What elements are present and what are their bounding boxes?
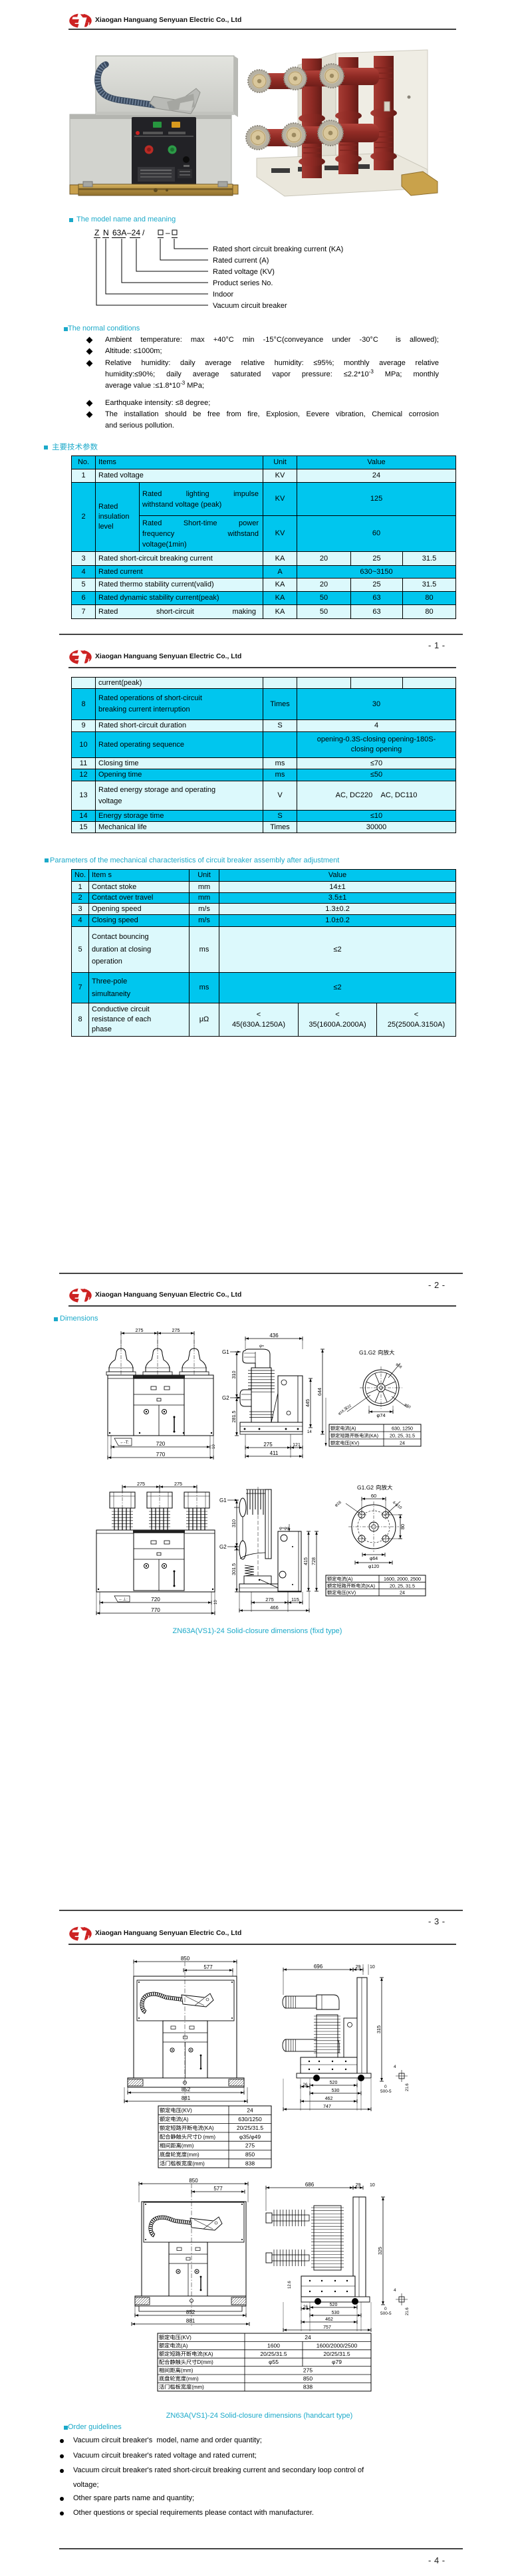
svg-text:φ16: φ16 [334,1500,343,1507]
svg-text:10: 10 [370,2183,375,2188]
svg-text:838: 838 [303,2383,313,2390]
svg-text:20/25/31.5: 20/25/31.5 [323,2351,350,2357]
svg-text:(A): (A) [350,1426,356,1432]
svg-text:0: 0 [384,2085,387,2089]
svg-text:(mm): (mm) [181,2368,193,2374]
svg-text:852: 852 [182,2087,191,2093]
svg-text:462: 462 [325,2317,333,2322]
svg-text:644: 644 [317,1388,322,1396]
svg-text:24: 24 [305,2334,311,2341]
svg-text:Rated short circuit breaking c: Rated short circuit breaking current (KA… [213,245,343,253]
svg-text:850: 850 [189,2178,198,2184]
svg-text:325: 325 [377,2247,383,2255]
svg-text:275: 275 [303,2367,313,2374]
svg-text:4-φ10: 4-φ10 [392,1501,403,1511]
svg-text:10: 10 [370,1965,375,1970]
svg-text:Rated current (A): Rated current (A) [213,257,269,265]
svg-text:757: 757 [323,2325,331,2330]
svg-text:(A): (A) [181,2343,188,2349]
svg-text:G2: G2 [219,1544,227,1550]
svg-text:(mm): (mm) [192,2384,204,2390]
svg-text:24: 24 [247,2107,253,2114]
svg-text:(KV): (KV) [350,1440,359,1446]
svg-text:(KV): (KV) [181,2335,192,2341]
svg-text:530: 530 [332,2089,340,2093]
svg-text:275: 275 [172,1327,180,1333]
svg-text:20, 25, 31.5: 20, 25, 31.5 [390,1583,415,1589]
svg-text:770: 770 [156,1452,166,1458]
svg-text:720: 720 [156,1441,166,1447]
svg-text:24: 24 [400,1440,405,1446]
svg-text:630/1250: 630/1250 [238,2116,262,2123]
svg-text:φ74: φ74 [376,1412,385,1418]
svg-text:(KA): (KA) [366,1583,375,1589]
svg-text:26: 26 [303,2305,309,2309]
svg-text:φ≈φφ: φ≈φφ [279,1527,289,1531]
svg-text:(KV): (KV) [182,2108,192,2114]
svg-text:0: 0 [384,2307,387,2311]
svg-text:720: 720 [151,1597,160,1603]
svg-text:4: 4 [394,2288,396,2293]
svg-text:411: 411 [270,1450,279,1456]
svg-text:G1.G2: G1.G2 [359,1349,376,1356]
svg-text:80: 80 [400,1524,406,1529]
svg-text:20/25/31.5: 20/25/31.5 [237,2125,263,2131]
svg-text:462: 462 [325,2097,333,2101]
svg-text:310: 310 [231,1371,237,1379]
svg-text:275: 275 [136,1327,144,1333]
svg-text:φ120: φ120 [368,1565,379,1569]
svg-text:850: 850 [303,2375,313,2382]
svg-text:26: 26 [303,2083,308,2087]
svg-text:–: – [166,228,170,237]
svg-text:(KA): (KA) [369,1433,378,1439]
svg-text:275: 275 [265,1597,274,1603]
svg-text:24: 24 [400,1590,405,1596]
svg-text:12.6: 12.6 [288,2281,292,2289]
svg-text:121: 121 [293,1443,301,1448]
svg-text:N: N [103,228,109,237]
svg-text:21.6: 21.6 [406,2083,410,2091]
svg-text:60: 60 [371,1493,376,1499]
svg-text:φ79: φ79 [332,2359,342,2365]
svg-text:1600: 1600 [267,2342,280,2349]
svg-text:881: 881 [186,2318,195,2324]
svg-text:20, 25, 31.5: 20, 25, 31.5 [390,1433,415,1439]
svg-text:520: 520 [330,2303,338,2307]
svg-text:/: / [142,228,145,237]
svg-text:275: 275 [245,2142,255,2149]
svg-text:500-5: 500-5 [380,2089,392,2094]
svg-text:281.5: 281.5 [231,1411,237,1423]
svg-text:Indoor: Indoor [213,291,234,299]
svg-text:G1: G1 [222,1349,229,1355]
svg-text:315: 315 [376,2025,382,2033]
svg-text:770: 770 [151,1607,160,1613]
svg-text:φ≈: φ≈ [259,1345,265,1349]
svg-text:(KA): (KA) [203,2351,213,2357]
svg-text:436: 436 [269,1333,279,1339]
svg-text:(A): (A) [182,2117,189,2123]
svg-text:63A: 63A [112,228,126,237]
svg-text:881: 881 [182,2095,191,2101]
svg-text:4: 4 [394,2065,396,2069]
svg-text:850: 850 [181,1956,190,1962]
svg-text:(mm): (mm) [187,2152,199,2158]
svg-text:(mm): (mm) [186,2376,199,2382]
svg-text:Product series No.: Product series No. [213,279,273,287]
svg-text:Z: Z [94,228,99,237]
svg-text:686: 686 [305,2182,315,2188]
svg-text:φ64: φ64 [370,1557,378,1561]
svg-text:850: 850 [245,2151,255,2158]
svg-text:1600/2000/2500: 1600/2000/2500 [317,2342,358,2349]
svg-text:275: 275 [137,1481,145,1487]
svg-text:G1: G1 [219,1497,227,1503]
svg-text:D (mm): D (mm) [197,2134,215,2140]
svg-text:G2: G2 [222,1395,229,1401]
svg-text:21.6: 21.6 [406,2307,410,2315]
svg-text:φ35/φ49: φ35/φ49 [239,2133,261,2140]
svg-text:852: 852 [186,2309,195,2315]
svg-text:←⊥:: ←⊥: [118,1597,128,1602]
svg-text:530: 530 [332,2311,340,2315]
svg-text:14: 14 [307,1430,312,1434]
svg-text:29: 29 [356,2183,361,2188]
svg-text:←-T:: ←-T: [120,1440,129,1445]
svg-text:–24: –24 [127,228,140,237]
svg-text:φ60: φ60 [404,1403,411,1410]
svg-text:D(mm): D(mm) [197,2359,213,2365]
svg-text:10: 10 [212,1444,216,1449]
svg-text:115: 115 [291,1597,299,1603]
svg-text:(mm): (mm) [192,2160,205,2166]
svg-text:445: 445 [305,1399,311,1407]
svg-text:577: 577 [213,2186,223,2192]
svg-text:275: 275 [263,1442,273,1448]
svg-text:301.5: 301.5 [231,1563,237,1575]
svg-text:Rated voltage (KV): Rated voltage (KV) [213,268,275,276]
svg-text:696: 696 [314,1964,323,1970]
svg-text:520: 520 [330,2081,338,2085]
svg-text:G1.G2: G1.G2 [357,1484,374,1491]
svg-text:20/25/31.5: 20/25/31.5 [260,2351,287,2357]
svg-text:577: 577 [203,1964,213,1970]
svg-text:747: 747 [323,2105,331,2109]
svg-text:29: 29 [356,1965,361,1970]
svg-text:275: 275 [174,1481,182,1487]
svg-text:Vacuum circuit breaker: Vacuum circuit breaker [213,302,287,310]
svg-text:500-5: 500-5 [380,2311,392,2316]
svg-text:310: 310 [231,1519,237,1527]
svg-text:1600, 2000, 2500: 1600, 2000, 2500 [384,1576,421,1582]
svg-text:630, 1250: 630, 1250 [392,1426,413,1432]
svg-text:466: 466 [270,1605,279,1610]
svg-text:(A): (A) [346,1576,353,1582]
svg-text:(mm): (mm) [182,2143,194,2149]
svg-text:415: 415 [304,1557,309,1565]
svg-text:(KV): (KV) [346,1590,356,1596]
svg-text:728: 728 [312,1557,317,1565]
svg-text:φ55: φ55 [269,2359,279,2365]
svg-text:(KA): (KA) [203,2125,214,2131]
svg-text:838: 838 [245,2160,255,2166]
